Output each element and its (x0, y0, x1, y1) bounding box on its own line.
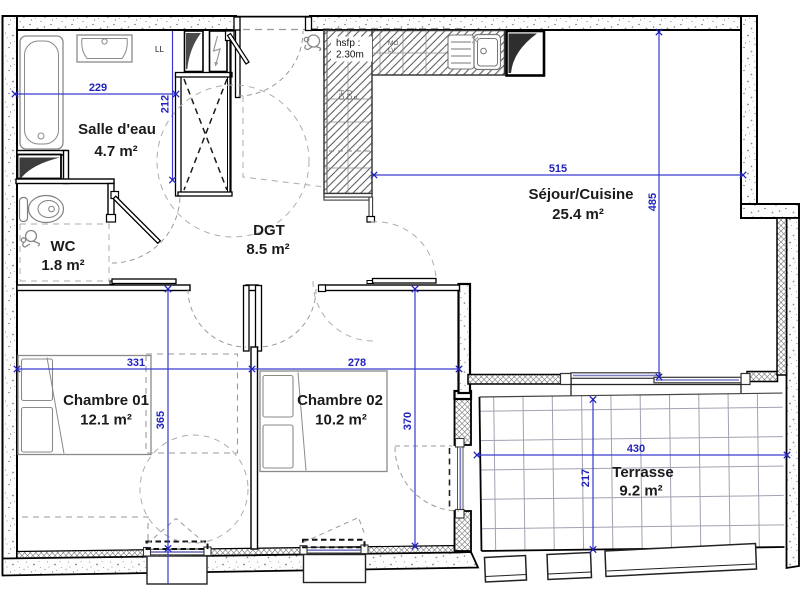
svg-text:278: 278 (348, 357, 366, 369)
svg-text:10.2 m²: 10.2 m² (315, 412, 367, 429)
svg-text:485: 485 (647, 193, 659, 211)
svg-text:MO: MO (388, 40, 398, 47)
svg-text:LV: LV (388, 47, 396, 54)
svg-text:12.1 m²: 12.1 m² (80, 412, 132, 429)
svg-text:515: 515 (549, 163, 567, 175)
svg-text:229: 229 (89, 82, 107, 94)
svg-text:Chambre 02: Chambre 02 (297, 392, 383, 409)
svg-text:Séjour/Cuisine: Séjour/Cuisine (528, 186, 633, 203)
svg-text:CU: CU (347, 90, 354, 100)
svg-text:2.30m: 2.30m (336, 50, 364, 61)
svg-text:331: 331 (127, 357, 145, 369)
svg-text:8.5 m²: 8.5 m² (246, 241, 289, 258)
svg-text:hsfp :: hsfp : (336, 38, 360, 49)
svg-text:217: 217 (580, 469, 592, 487)
svg-text:CH: CH (339, 90, 346, 100)
svg-text:Chambre 01: Chambre 01 (63, 392, 149, 409)
svg-text:9.2 m²: 9.2 m² (619, 483, 662, 500)
svg-text:212: 212 (160, 95, 172, 113)
svg-text:370: 370 (402, 412, 414, 430)
svg-text:LL: LL (155, 45, 164, 54)
svg-text:365: 365 (155, 411, 167, 429)
svg-text:DGT: DGT (253, 222, 285, 239)
svg-text:Terrasse: Terrasse (612, 464, 673, 481)
svg-text:25.4 m²: 25.4 m² (552, 206, 604, 223)
svg-text:Salle d'eau: Salle d'eau (78, 121, 156, 138)
svg-text:WC: WC (51, 238, 76, 255)
svg-text:430: 430 (627, 443, 645, 455)
svg-text:F: F (354, 96, 361, 100)
svg-text:1.8 m²: 1.8 m² (41, 257, 84, 274)
svg-text:4.7 m²: 4.7 m² (94, 143, 137, 160)
